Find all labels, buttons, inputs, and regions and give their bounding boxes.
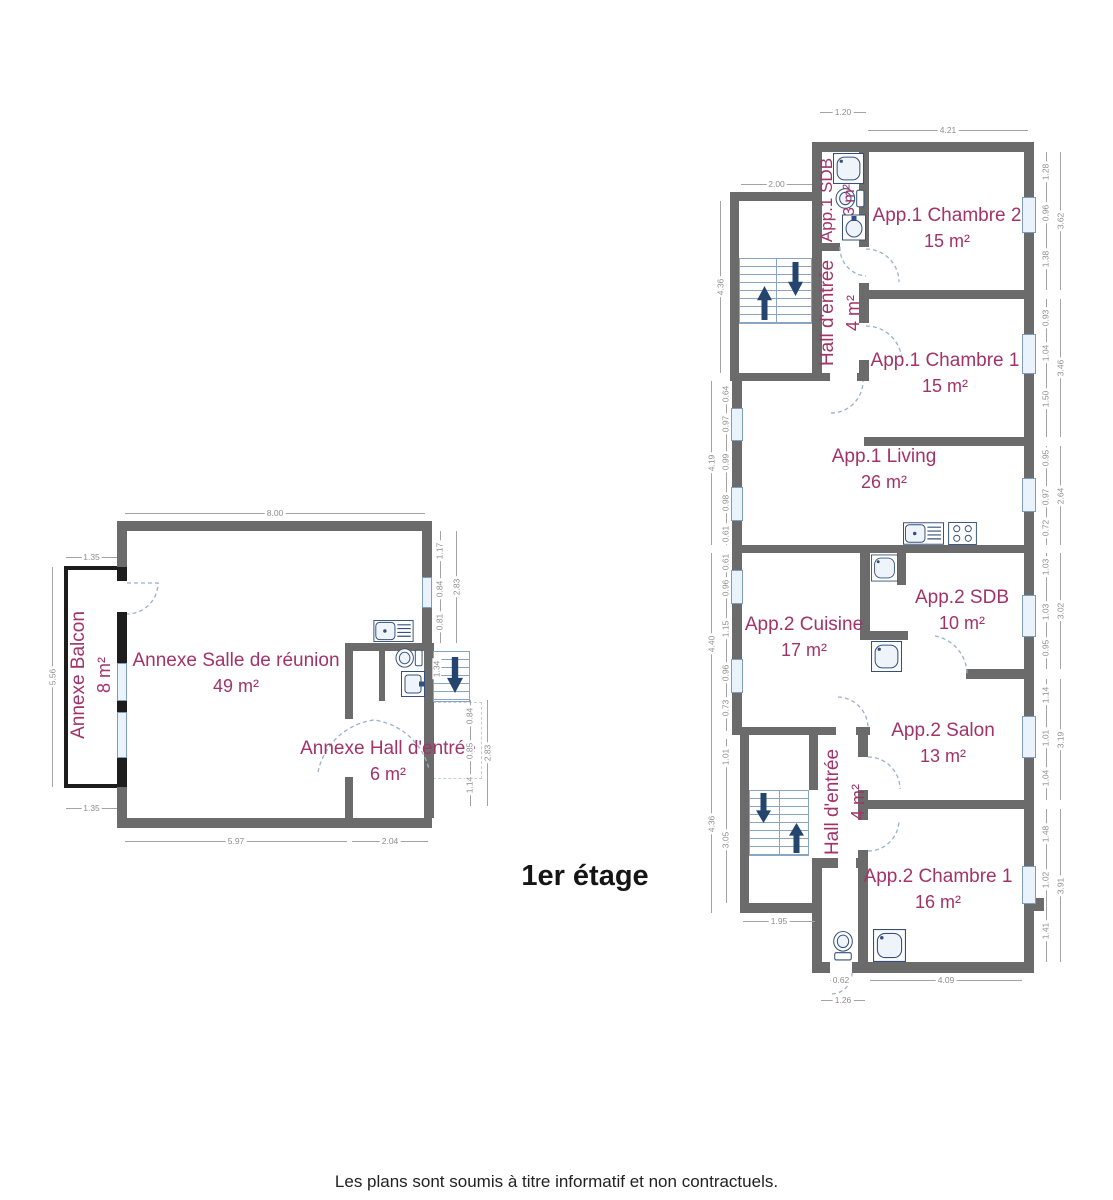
- dim-label: 3.91: [1056, 875, 1065, 896]
- dim-line: 8.00: [125, 513, 425, 514]
- wall: [864, 290, 1034, 299]
- dim-label: 2.04: [380, 837, 401, 846]
- dim-line: 1.35: [66, 557, 117, 558]
- dim-label: 1.01: [1041, 728, 1050, 749]
- wall: [1024, 142, 1034, 973]
- balcony-wall: [64, 566, 117, 570]
- dim-label: 1.35: [81, 553, 102, 562]
- dim-label: 1.03: [1041, 602, 1050, 623]
- washbasin-icon: [401, 671, 425, 697]
- room-label-annexe-salle: Annexe Salle de réunion 49 m²: [116, 648, 356, 698]
- staircase: [749, 790, 809, 856]
- wall: [897, 553, 906, 585]
- dim-label: 1.41: [1041, 921, 1050, 942]
- room-label-app2-sdb: App.2 SDB 10 m²: [862, 585, 1062, 635]
- wall: [730, 192, 822, 201]
- dim-label: 0.97: [1041, 487, 1050, 508]
- dim-label: 1.48: [1041, 824, 1050, 845]
- room-label-app1-living: App.1 Living 26 m²: [784, 444, 984, 494]
- room-area: 10 m²: [862, 611, 1062, 635]
- room-name: Annexe Salle de réunion: [116, 648, 356, 674]
- dim-label: 4.09: [936, 976, 957, 985]
- dim-label: 5.97: [226, 837, 247, 846]
- dim-line: 2.00: [741, 184, 812, 185]
- dim-line: 4.36: [720, 201, 721, 373]
- dim-label: 1.04: [1041, 768, 1050, 789]
- dim-line: 1.26: [821, 1000, 865, 1001]
- dim-label: 0.96: [721, 663, 730, 684]
- dim-label: 1.34: [432, 659, 441, 680]
- balcony-wall: [64, 784, 117, 788]
- floor-plan: Annexe Balcon 8 m² Annexe Salle de réuni…: [0, 0, 1113, 1200]
- dim-label: 4.21: [938, 126, 959, 135]
- shower-icon: [871, 553, 898, 583]
- door-arc: [866, 249, 899, 282]
- dim-label: 0.85: [465, 741, 474, 762]
- stove-icon: [948, 522, 977, 545]
- room-name: App.2 Chambre 1: [838, 864, 1038, 890]
- wall: [117, 818, 432, 828]
- room-area: 15 m²: [845, 374, 1045, 398]
- window: [731, 659, 743, 693]
- dim-label: 8.00: [265, 509, 286, 518]
- window: [1022, 478, 1036, 512]
- dim-label: 0.96: [721, 578, 730, 599]
- dim-line: 1.95: [743, 921, 815, 922]
- wall: [117, 521, 432, 531]
- window: [731, 408, 743, 441]
- dim-label: 1.38: [1041, 249, 1050, 270]
- room-label-app2-hall: Hall d'entrée 4 m²: [820, 737, 862, 867]
- dim-label: 4.36: [707, 814, 716, 835]
- wall: [732, 727, 836, 735]
- dim-label: 0.62: [831, 976, 852, 985]
- dim-label: 0.72: [1041, 518, 1050, 539]
- room-area: 17 m²: [704, 638, 904, 662]
- wall: [379, 651, 385, 701]
- room-area: 15 m²: [847, 229, 1047, 253]
- dim-label: 1.15: [721, 619, 730, 640]
- wall: [732, 545, 1034, 553]
- window: [731, 487, 743, 521]
- room-label-annexe-balcon: Annexe Balcon 8 m²: [66, 590, 112, 760]
- wall: [730, 192, 739, 381]
- dim-label: 3.19: [1056, 729, 1065, 750]
- dim-label: 1.95: [769, 917, 790, 926]
- room-name: App.1 Living: [784, 444, 984, 470]
- dim-line: 1.20: [820, 112, 866, 113]
- dim-line: 4.09: [870, 980, 1022, 981]
- dim-line: 2.83: [456, 531, 457, 643]
- toilet-icon: [831, 931, 855, 962]
- wall: [809, 735, 818, 790]
- dim-label: 2.00: [766, 180, 787, 189]
- dim-label: 1.14: [465, 775, 474, 796]
- dim-line: 3.62: [1060, 152, 1061, 290]
- kitchen-sink-icon: [903, 522, 944, 545]
- dim-line: 1.35: [66, 808, 117, 809]
- dim-label: 0.84: [465, 706, 474, 727]
- room-area: 49 m²: [116, 674, 356, 698]
- dim-line: 5.56: [52, 567, 53, 787]
- dim-label: 0.61: [721, 524, 730, 545]
- dim-label: 4.19: [707, 453, 716, 474]
- dim-label: 0.99: [721, 452, 730, 473]
- dim-label: 0.96: [1041, 203, 1050, 224]
- dim-line: 3.19: [1060, 679, 1061, 800]
- room-name: Hall d'entrée: [820, 737, 846, 867]
- shower-icon: [873, 929, 906, 962]
- toilet-icon: [395, 647, 424, 669]
- dim-label: 1.20: [833, 108, 854, 117]
- dim-label: 3.46: [1056, 358, 1065, 379]
- room-name: App.1 Chambre 1: [845, 348, 1045, 374]
- wall: [740, 903, 815, 913]
- dim-label: 0.73: [721, 698, 730, 719]
- dim-label: 1.17: [435, 541, 444, 562]
- balcony-wall: [117, 701, 127, 712]
- dim-line: 3.91: [1060, 809, 1061, 962]
- dim-label: 1.03: [1041, 557, 1050, 578]
- balcony-wall: [117, 758, 127, 787]
- room-label-app2-chambre1: App.2 Chambre 1 16 m²: [838, 864, 1038, 914]
- window: [117, 712, 127, 758]
- dim-line: 5.97: [125, 841, 347, 842]
- room-label-app1-chambre2: App.1 Chambre 2 15 m²: [847, 203, 1047, 253]
- dim-line: 3.46: [1060, 299, 1061, 437]
- window: [731, 570, 743, 604]
- room-name: App.2 Salon: [843, 718, 1043, 744]
- wall: [422, 521, 432, 577]
- dim-label: 0.95: [1041, 448, 1050, 469]
- dim-line: 4.21: [868, 130, 1028, 131]
- window: [422, 577, 432, 608]
- room-name: App.1 Chambre 2: [847, 203, 1047, 229]
- dim-label: 1.28: [1041, 162, 1050, 183]
- wall: [740, 735, 749, 913]
- dim-line: 2.04: [352, 841, 428, 842]
- room-area: 4 m²: [846, 737, 870, 867]
- dim-label: 0.84: [435, 579, 444, 600]
- wall: [852, 962, 1034, 973]
- dim-label: 0.97: [721, 414, 730, 435]
- dim-line: 0.62: [830, 980, 852, 981]
- dim-label: 0.61: [721, 552, 730, 573]
- wall: [858, 800, 1034, 809]
- dim-label: 1.02: [1041, 870, 1050, 891]
- dim-label: 4.36: [716, 277, 725, 298]
- dim-label: 1.04: [1041, 343, 1050, 364]
- door-arc: [935, 636, 967, 674]
- room-area: 13 m²: [843, 744, 1043, 768]
- room-area: 26 m²: [784, 470, 984, 494]
- dim-label: 0.98: [721, 493, 730, 514]
- balcony-wall: [117, 567, 127, 581]
- dim-label: 5.56: [48, 667, 57, 688]
- dim-label: 1.14: [1041, 685, 1050, 706]
- dim-label: 0.64: [721, 384, 730, 405]
- kitchen-sink-icon: [373, 620, 414, 642]
- dim-label: 3.62: [1056, 211, 1065, 232]
- room-label-app2-salon: App.2 Salon 13 m²: [843, 718, 1043, 768]
- dim-label: 1.35: [81, 804, 102, 813]
- floor-title: 1er étage: [440, 860, 730, 893]
- wall: [117, 521, 127, 567]
- dim-label: 2.83: [452, 577, 461, 598]
- dim-label: 0.81: [435, 612, 444, 633]
- room-name: App.2 SDB: [862, 585, 1062, 611]
- dim-label: 2.64: [1056, 485, 1065, 506]
- room-name: Hall d'entrée: [815, 248, 841, 378]
- room-name: Annexe Balcon: [66, 590, 92, 760]
- wall: [966, 669, 1034, 679]
- door-arc: [127, 583, 158, 614]
- staircase: [739, 258, 812, 324]
- room-area: 8 m²: [92, 590, 116, 760]
- dim-label: 1.01: [721, 747, 730, 768]
- room-label-app1-chambre1: App.1 Chambre 1 15 m²: [845, 348, 1045, 398]
- dim-label: 1.26: [833, 996, 854, 1005]
- dim-line: 2.64: [1060, 446, 1061, 545]
- dim-label: 1.50: [1041, 389, 1050, 410]
- dim-line: 4.19: [711, 381, 712, 545]
- dim-label: 3.05: [721, 830, 730, 851]
- door-arc: [868, 821, 899, 851]
- dim-label: 0.95: [1041, 638, 1050, 659]
- disclaimer-text: Les plans sont soumis à titre informatif…: [0, 1172, 1113, 1192]
- room-area: 16 m²: [838, 890, 1038, 914]
- room-name: App.1 SDB: [816, 144, 839, 256]
- dim-label: 0.93: [1041, 308, 1050, 329]
